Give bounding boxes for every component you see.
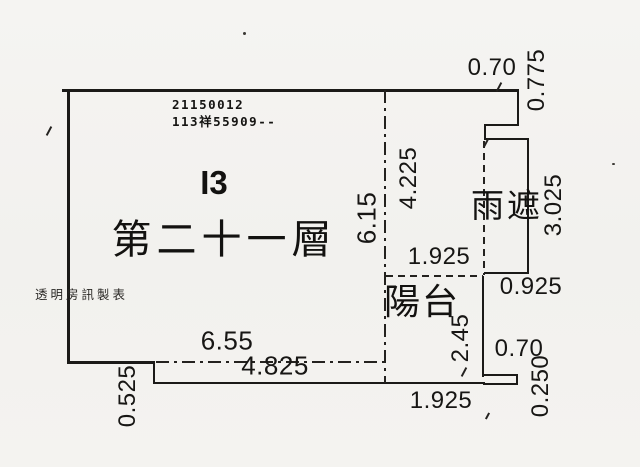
dim-top-notch-width: 0.70 — [468, 54, 517, 82]
dim-bottom-step-height: 0.525 — [114, 365, 142, 428]
wall-left-line — [67, 90, 70, 363]
dim-bottom-ledge-height: 0.250 — [527, 355, 555, 418]
dimension-tick — [46, 126, 52, 136]
floor-label: 第二十一層 — [112, 207, 337, 265]
dim-bottom-width: 1.925 — [410, 387, 473, 415]
balcony-right-line — [482, 276, 484, 377]
dim-top-notch-height: 0.775 — [523, 49, 551, 112]
stamp-note: 透明房訊製表 — [35, 284, 128, 303]
dim-balcony-width: 1.925 — [408, 243, 471, 271]
unit-boundary-vertical-dashdot-line — [384, 90, 386, 383]
dimension-tick — [461, 367, 467, 377]
dim-main-right-height: 6.15 — [352, 192, 383, 245]
wall-bottom-left-line — [67, 361, 155, 364]
dim-canopy-height: 3.025 — [540, 174, 568, 237]
dim-upper-right-height: 4.225 — [395, 147, 423, 210]
unit-label: I3 — [200, 164, 228, 202]
bottom-step-line — [153, 361, 155, 384]
canopy-top-line — [484, 138, 529, 140]
ledge-bottom-line — [483, 383, 518, 385]
scan-speck — [243, 32, 246, 35]
dim-canopy-bottom-width: 0.925 — [500, 273, 563, 301]
notch-bottom-line — [484, 124, 519, 126]
dim-lower-boundary-width: 4.825 — [241, 351, 309, 382]
wall-top-line — [62, 89, 519, 92]
bottom-lower-line — [153, 382, 485, 384]
ledge-top-line — [483, 374, 518, 376]
doc-number-line2: 113祥55909-- — [172, 111, 276, 130]
canopy-label: 雨遮 — [471, 179, 543, 227]
scan-speck — [485, 412, 490, 419]
dim-balcony-height: 2.45 — [447, 314, 475, 363]
doc-number-line1: 21150012 — [172, 97, 244, 112]
notch-right-line — [517, 89, 519, 126]
floor-plan-canvas: 21150012 113祥55909-- I3 第二十一層 雨遮 陽台 透明房訊… — [0, 0, 640, 467]
scan-speck — [612, 163, 615, 165]
